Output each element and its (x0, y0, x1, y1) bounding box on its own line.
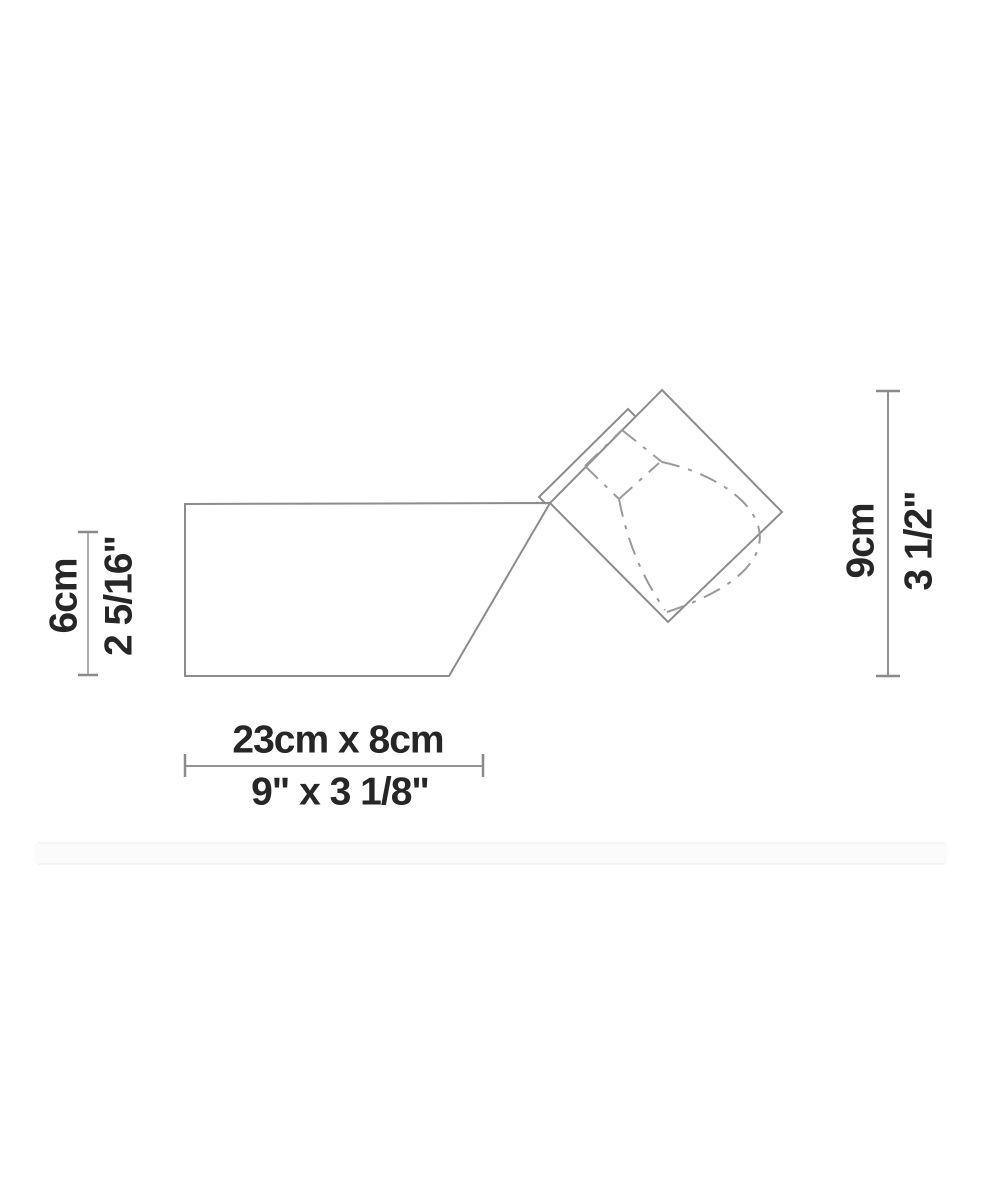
head-mounting-plate (539, 409, 635, 504)
overall-height-imperial-label: 3 1/2" (898, 491, 941, 590)
lamp-cone-lower-side (619, 499, 665, 610)
background-stripes (35, 843, 947, 864)
dimension-overall-height: 9cm 3 1/2" (840, 391, 941, 676)
body-height-imperial-label: 2 5/16" (98, 536, 141, 656)
hidden-lamp-lines (585, 430, 760, 612)
fixture-drawing (185, 390, 782, 676)
dimension-body-height: 6cm 2 5/16" (43, 532, 141, 675)
overall-height-metric-label: 9cm (840, 503, 883, 578)
lamp-socket-edge-bottom (619, 463, 659, 499)
background-stripe (35, 843, 947, 864)
lamp-cone-upper-side (622, 430, 662, 462)
fixture-body-outline (185, 503, 550, 676)
dimension-footprint: 23cm x 8cm 9" x 3 1/8" (185, 719, 483, 814)
lamp-rim-arc (662, 462, 760, 612)
dimension-diagram-svg: 6cm 2 5/16" 9cm 3 1/2" 23cm x 8cm 9" x 3… (0, 0, 983, 1200)
footprint-metric-label: 23cm x 8cm (232, 719, 443, 762)
diagram-canvas: 6cm 2 5/16" 9cm 3 1/2" 23cm x 8cm 9" x 3… (0, 0, 983, 1200)
footprint-imperial-label: 9" x 3 1/8" (251, 771, 429, 814)
body-height-metric-label: 6cm (43, 558, 86, 633)
lamp-socket-edge-left (585, 466, 619, 499)
